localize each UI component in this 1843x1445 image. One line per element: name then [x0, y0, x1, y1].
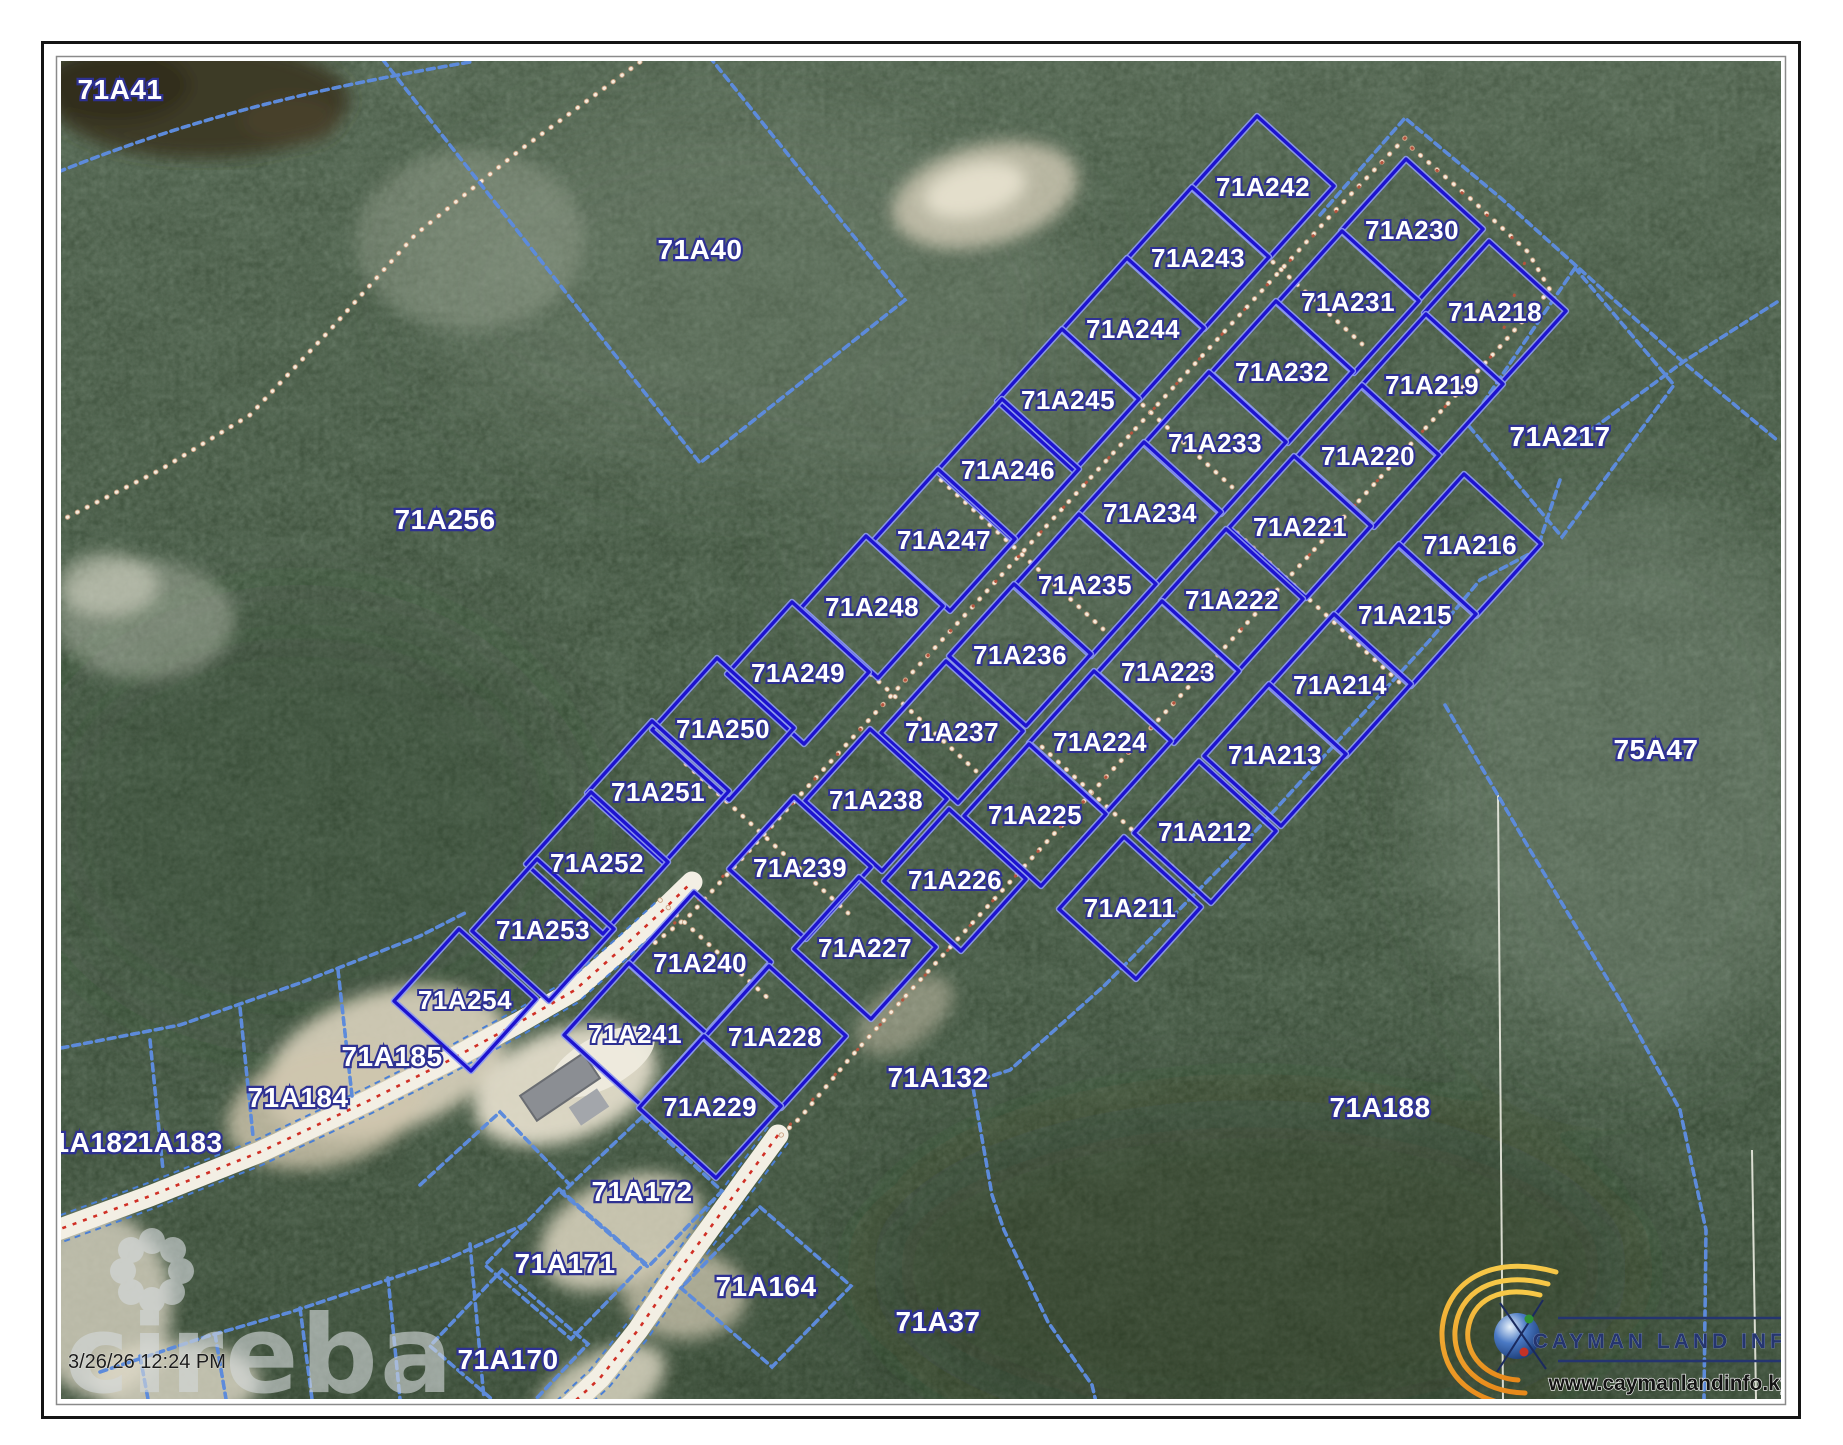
parcel-label: 71A184: [247, 1082, 348, 1113]
parcel-label: 71A40: [657, 234, 742, 265]
parcel-label: 75A47: [1613, 734, 1698, 765]
parcel-label: 71A225: [988, 800, 1082, 830]
logo-title: CAYMAN LAND INFO: [1533, 1330, 1807, 1353]
parcel-label: 71A242: [1216, 172, 1310, 202]
parcel-label: 71A237: [905, 717, 999, 747]
parcel-label: 71A252: [550, 848, 644, 878]
parcel-label: 71A172: [591, 1176, 692, 1207]
parcel-label: 71A238: [829, 785, 923, 815]
parcel-label: 71A249: [751, 658, 845, 688]
parcel-label: 71A216: [1423, 530, 1517, 560]
parcel-label: 71A218: [1448, 297, 1542, 327]
parcel-label: 71A222: [1185, 585, 1279, 615]
map-canvas[interactable]: 71A24271A24371A24471A24571A24671A24771A2…: [28, 42, 1840, 1445]
parcel-label: 71A235: [1038, 570, 1132, 600]
parcel-label: 71A246: [961, 455, 1055, 485]
parcel-label: 71A41: [77, 74, 162, 105]
parcel-label: 71A171: [514, 1248, 615, 1279]
parcel-label: 71A230: [1365, 215, 1459, 245]
parcel-label: 71A240: [653, 948, 747, 978]
parcel-label: 71A232: [1235, 357, 1329, 387]
parcel-label: 71A217: [1509, 421, 1610, 452]
parcel-label: 71A245: [1021, 385, 1115, 415]
parcel-label: 71A239: [753, 853, 847, 883]
parcel-label: 71A185: [341, 1041, 442, 1072]
map-export-page: 71A24271A24371A24471A24571A24671A24771A2…: [0, 0, 1843, 1445]
timestamp: 3/26/26 12:24 PM: [68, 1351, 226, 1373]
parcel-label: 71A132: [887, 1062, 988, 1093]
parcel-label: 71A236: [973, 640, 1067, 670]
parcel-label: 71A234: [1103, 498, 1197, 528]
parcel-label: 71A247: [897, 525, 991, 555]
parcel-label: 71A188: [1329, 1092, 1430, 1123]
cadastral-map: 71A24271A24371A24471A24571A24671A24771A2…: [0, 0, 1843, 1445]
parcel-label: 71A170: [457, 1344, 558, 1375]
parcel-label: 71A219: [1385, 370, 1479, 400]
aerial-imagery: 71A24271A24371A24471A24571A24671A24771A2…: [28, 42, 1840, 1445]
parcel-label: 71A229: [663, 1092, 757, 1122]
parcel-label: 71A228: [728, 1022, 822, 1052]
parcel-label: 71A211: [1084, 893, 1177, 923]
parcel-label: 71A250: [676, 714, 770, 744]
parcel-label: 71A256: [394, 504, 495, 535]
parcel-label: 71A37: [895, 1306, 980, 1337]
parcel-label: 71A231: [1301, 287, 1395, 317]
parcel-label: 71A227: [818, 933, 912, 963]
parcel-label: 71A221: [1253, 512, 1347, 542]
parcel-label: 71A214: [1293, 670, 1387, 700]
parcel-label: 71A220: [1321, 441, 1415, 471]
parcel-label: 71A233: [1168, 428, 1262, 458]
parcel-label: 71A243: [1151, 243, 1245, 273]
parcel-label: 71A253: [496, 915, 590, 945]
parcel-label: 71A164: [715, 1271, 816, 1302]
parcel-label: 71A241: [588, 1019, 682, 1049]
parcel-label: 71A251: [611, 777, 705, 807]
parcel-label: 71A224: [1053, 727, 1147, 757]
parcel-label: 71A212: [1158, 817, 1252, 847]
parcel-label: 71A226: [908, 865, 1002, 895]
parcel-label: 71A254: [418, 985, 512, 1015]
parcel-label: 71A223: [1121, 657, 1215, 687]
parcel-label: 71A215: [1358, 600, 1452, 630]
logo-url: www.caymanlandinfo.ky: [1547, 1372, 1791, 1395]
parcel-label: 71A244: [1086, 314, 1180, 344]
parcel-label: 71A248: [825, 592, 919, 622]
parcel-label: 71A213: [1228, 740, 1322, 770]
